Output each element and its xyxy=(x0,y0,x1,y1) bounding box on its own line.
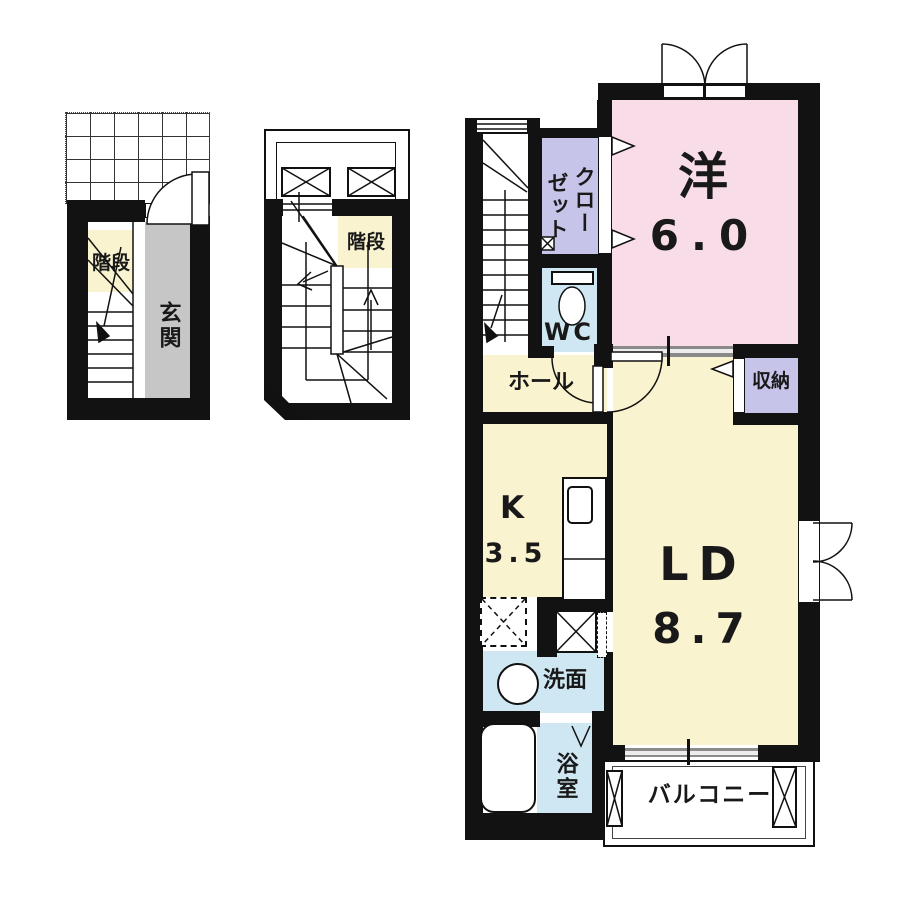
floorplan-canvas: 階段 玄関 階段 xyxy=(0,0,900,900)
washroom-door xyxy=(597,612,607,658)
wall xyxy=(733,413,820,425)
washer-space xyxy=(555,610,597,653)
french-door-arc xyxy=(705,44,747,87)
wall xyxy=(190,216,210,420)
wall xyxy=(604,652,613,713)
wall xyxy=(607,412,613,612)
closet-label-col1: クロー xyxy=(570,144,598,256)
floor1-door-threshold xyxy=(145,203,192,218)
wall xyxy=(392,199,410,420)
hall-label: ホール xyxy=(485,370,597,396)
kitchen-size: 3.5 xyxy=(474,538,558,570)
french-door-gap xyxy=(799,521,819,602)
living-dining-size: 8.7 xyxy=(633,606,773,652)
floor1-stairs-label: 階段 xyxy=(88,252,134,276)
wall xyxy=(465,813,615,840)
french-door-threshold xyxy=(663,85,704,98)
wall xyxy=(597,254,612,358)
western-room-label: 洋 xyxy=(648,148,758,206)
floor2-vent-window xyxy=(347,167,396,197)
wall xyxy=(67,398,210,420)
wall xyxy=(465,412,607,424)
wc-label: WC xyxy=(540,318,598,348)
balcony-panel xyxy=(606,770,623,827)
kitchen-sink xyxy=(567,486,593,524)
french-door-threshold xyxy=(705,85,746,98)
wall xyxy=(537,597,557,657)
floor2-door-threshold xyxy=(283,199,332,216)
wc-tank xyxy=(551,271,594,285)
floor2-stairs-label: 階段 xyxy=(340,230,392,256)
balcony-sliding-door xyxy=(625,748,758,757)
bathroom-label: 浴室 xyxy=(550,740,580,814)
stair-window xyxy=(476,119,528,133)
floor1-entrance-label: 玄関 xyxy=(154,286,182,366)
living-dining-label: LD xyxy=(635,538,771,590)
wall xyxy=(67,200,88,420)
balcony-label: バルコニー xyxy=(628,780,792,810)
western-room-size: 6.0 xyxy=(640,212,770,260)
balcony-door-tick xyxy=(687,739,690,765)
floor2-vent-window xyxy=(281,167,331,197)
wall xyxy=(733,344,820,358)
washroom-label: 洗面 xyxy=(534,668,596,694)
closet-label-col2: ゼット xyxy=(543,150,571,262)
wall xyxy=(597,100,612,138)
french-door-arc xyxy=(662,44,705,87)
sliding-door-track xyxy=(613,346,733,357)
wall xyxy=(264,199,282,420)
refrigerator-space xyxy=(480,597,527,647)
bathtub xyxy=(480,723,536,813)
storage-label: 収納 xyxy=(743,370,799,394)
sliding-door-tick xyxy=(667,336,670,366)
closet-sliding-door xyxy=(598,136,612,254)
stairs-arrow xyxy=(485,324,497,342)
kitchen-label: K xyxy=(494,490,530,526)
wall xyxy=(264,403,410,420)
floor1-tile-approach xyxy=(65,112,210,204)
